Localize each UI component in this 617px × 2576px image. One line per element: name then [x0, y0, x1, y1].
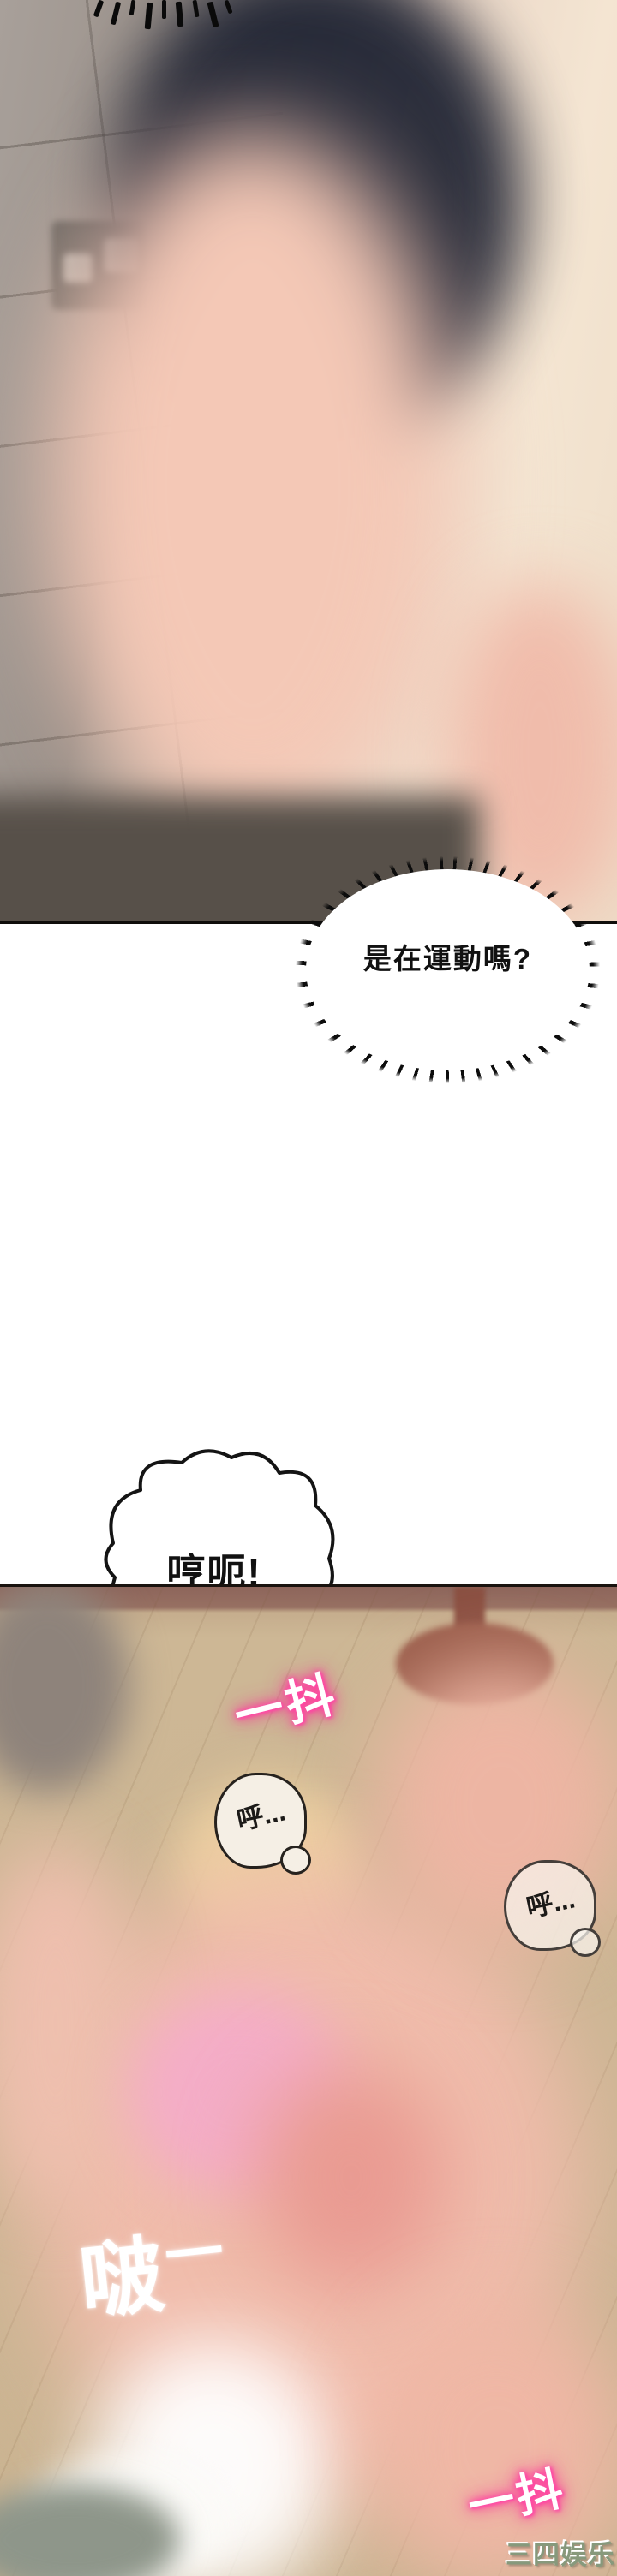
- sfx-pop-text: 啵一: [73, 2201, 231, 2337]
- speech-bubble-burst: 是在運動嗎?: [279, 844, 617, 1096]
- breath-bubble: 呼...: [214, 1773, 307, 1869]
- speech-text: 是在運動嗎?: [279, 936, 617, 977]
- sfx-pop-char: 啵: [75, 2227, 169, 2330]
- blurred-artwork-shape-deep-tone: [257, 2066, 446, 2289]
- burst-dash: [162, 0, 166, 19]
- breath-text: 呼...: [508, 1874, 591, 1928]
- breath-bubble-bump: [280, 1846, 311, 1875]
- breath-bubble: 呼...: [504, 1860, 596, 1951]
- breath-bubble-bump: [570, 1928, 601, 1957]
- breath-text: 呼...: [219, 1786, 302, 1840]
- sfx-pop-dash: 一: [160, 2203, 227, 2294]
- webtoon-page: 是在運動嗎? 哼呃! 一抖 呼... 呼... 啵一 一抖: [0, 0, 617, 2576]
- blurred-artwork-shape-skin: [51, 128, 454, 839]
- panel-artwork-bedroom: [0, 1584, 617, 2576]
- panel-artwork-shower: [0, 0, 617, 924]
- site-watermark: 三四娱乐: [506, 2533, 615, 2572]
